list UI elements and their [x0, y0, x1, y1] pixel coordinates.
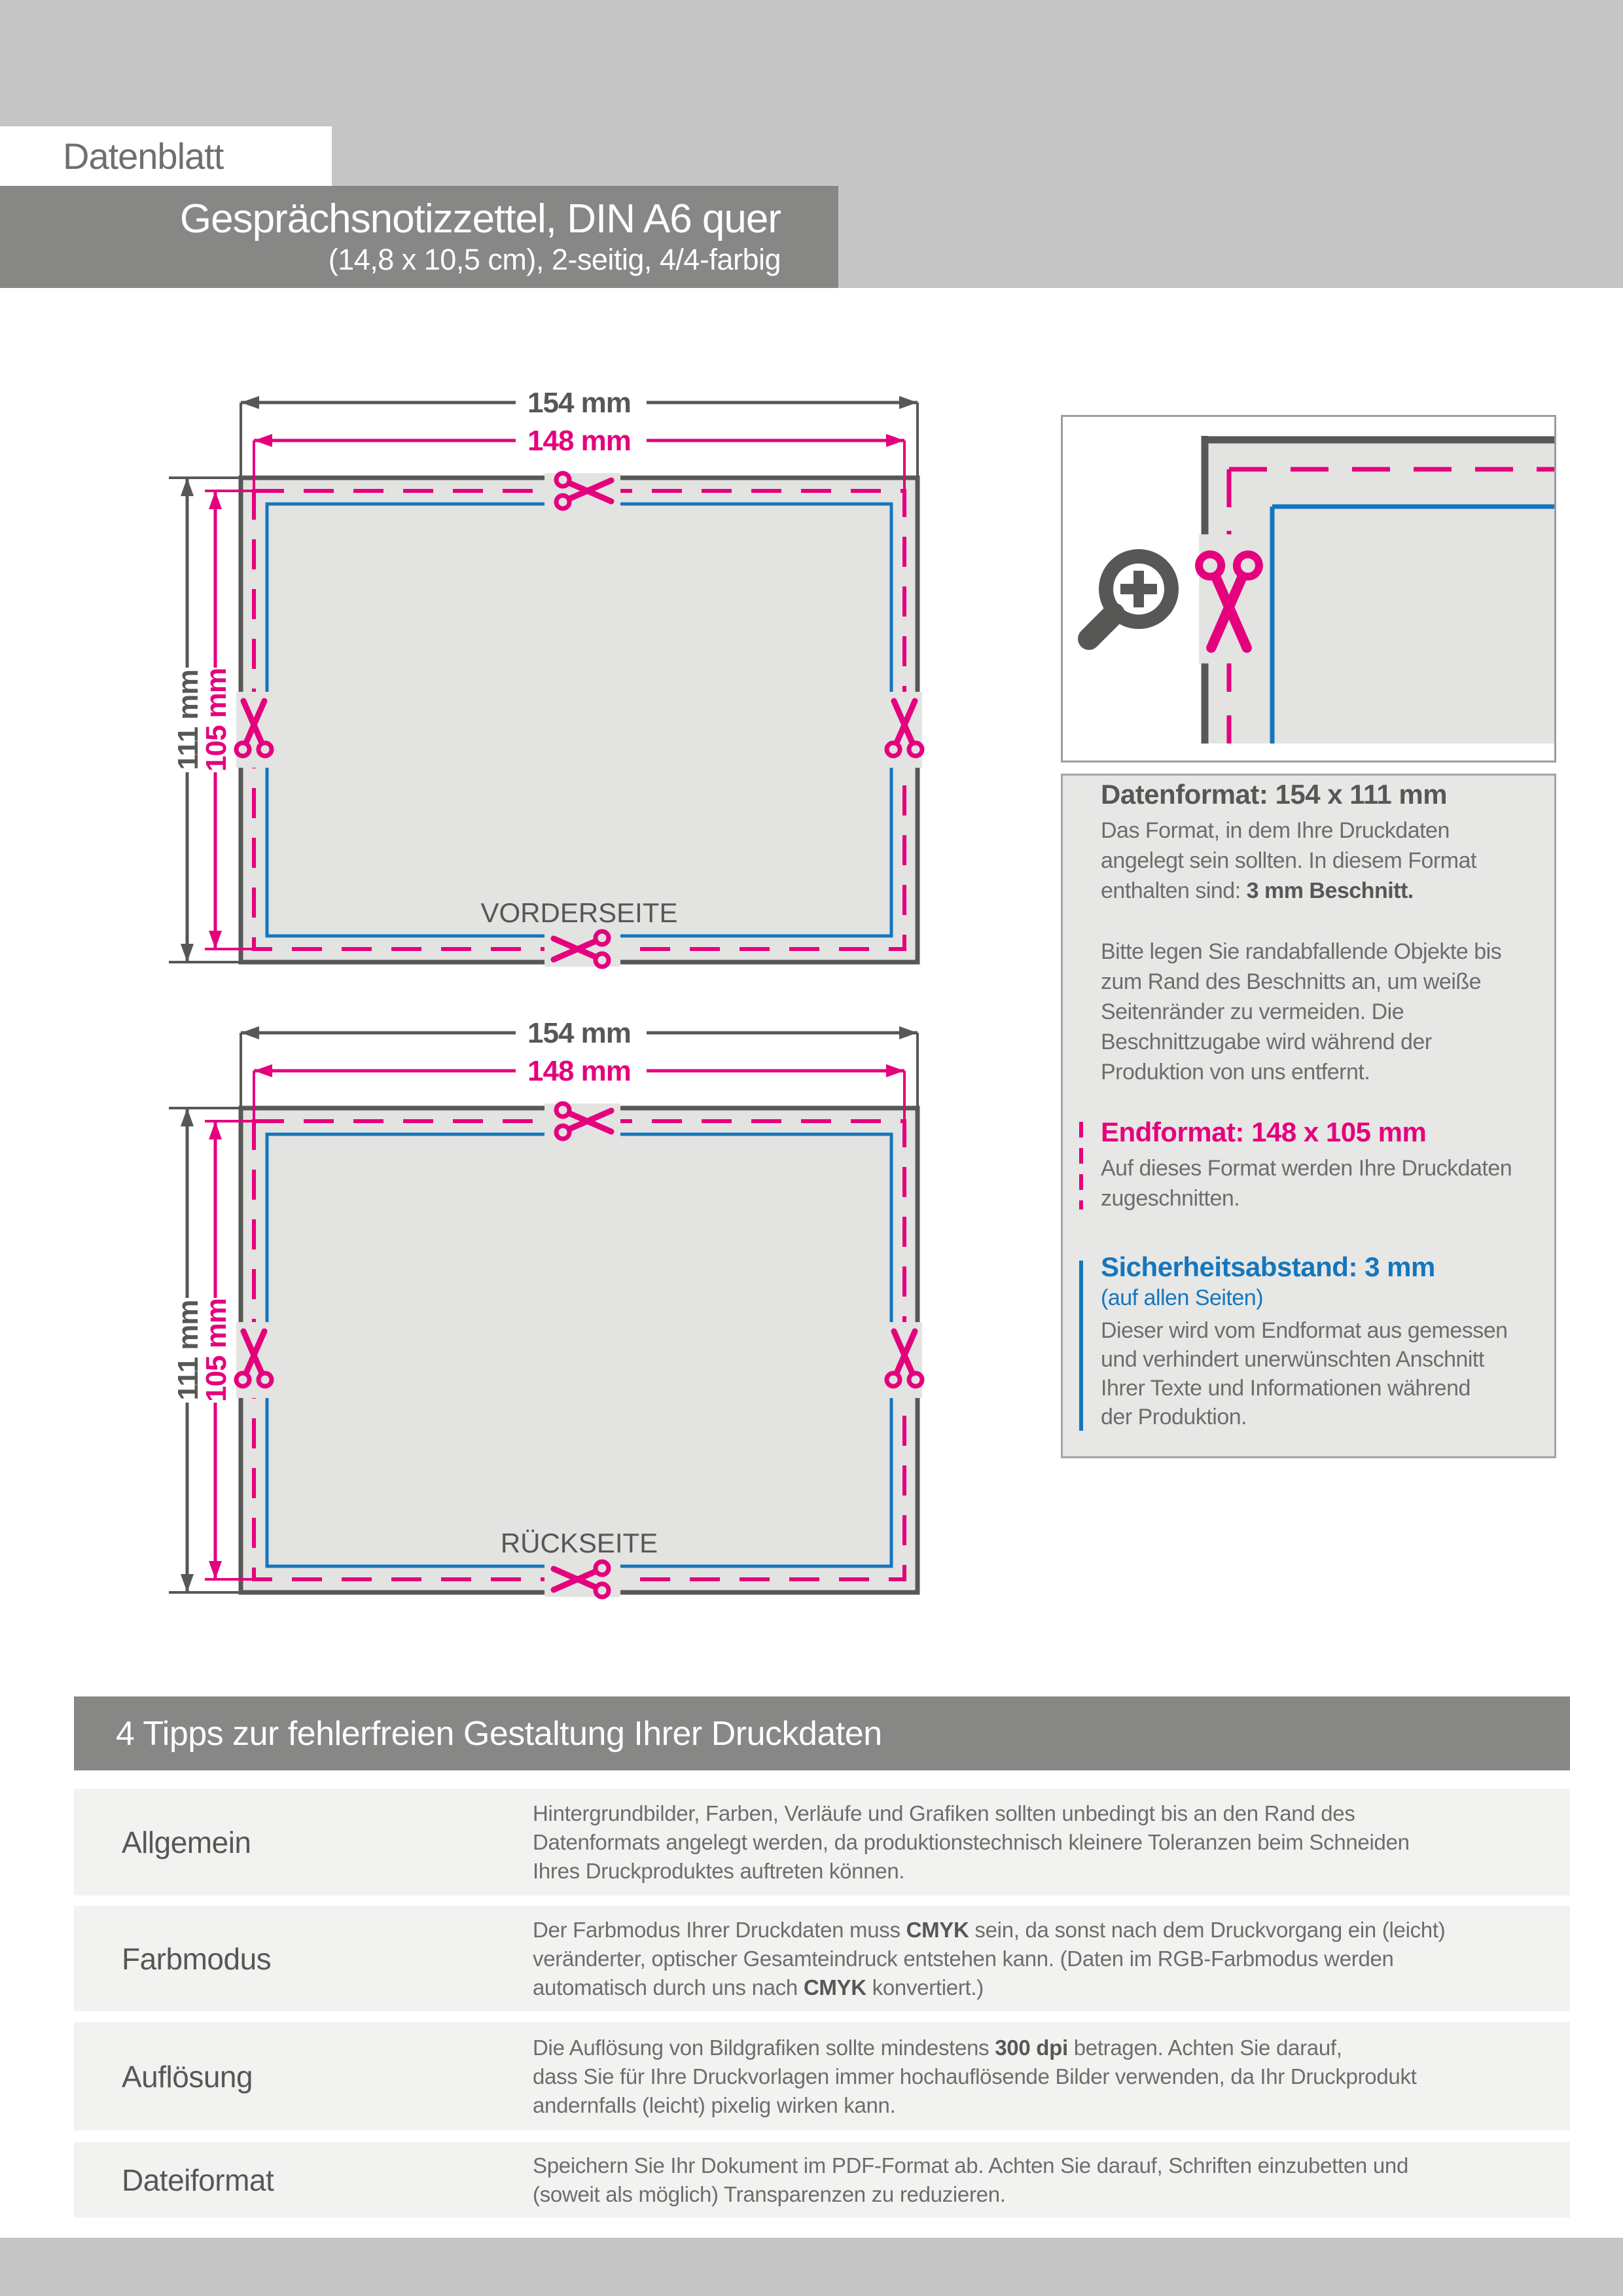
- dim-height-outer-label: 111 mm: [172, 1300, 204, 1400]
- text-line: Ihres Druckproduktes auftreten können.: [533, 1857, 1410, 1886]
- datenblatt-badge-label: Datenblatt: [63, 135, 223, 177]
- text-line: Datenformats angelegt werden, da produkt…: [533, 1828, 1410, 1857]
- text-line: und verhindert unerwünschten Anschnitt: [1101, 1345, 1533, 1374]
- text-line: Der Farbmodus Ihrer Druckdaten muss CMYK…: [533, 1916, 1445, 1945]
- scissors-icon: [544, 473, 620, 509]
- tip-text: Speichern Sie Ihr Dokument im PDF-Format…: [533, 2142, 1408, 2217]
- dataformat-heading: Datenformat: 154 x 111 mm: [1101, 779, 1533, 810]
- dataformat-paragraph: Das Format, in dem Ihre Druckdatenangele…: [1101, 816, 1533, 906]
- dim-width-outer-label: 154 mm: [527, 387, 631, 419]
- tip-text: Der Farbmodus Ihrer Druckdaten muss CMYK…: [533, 1906, 1445, 2011]
- safety-margin-paragraph: Dieser wird vom Endformat aus gemessenun…: [1101, 1316, 1533, 1431]
- tip-label: Farbmodus: [122, 1906, 271, 2011]
- scissors-icon: [887, 1322, 922, 1398]
- safety-margin-line: [267, 1134, 891, 1566]
- dimension-arrowhead: [254, 1064, 272, 1077]
- dimension-arrowhead: [181, 1108, 194, 1126]
- text-line: Bitte legen Sie randabfallende Objekte b…: [1101, 937, 1533, 967]
- safety-margin-heading: Sicherheitsabstand: 3 mm: [1101, 1251, 1533, 1283]
- text-line: Auf dieses Format werden Ihre Druckdaten: [1101, 1153, 1533, 1183]
- tip-label: Allgemein: [122, 1789, 251, 1895]
- text-line: der Produktion.: [1101, 1403, 1533, 1431]
- text-line: andernfalls (leicht) pixelig wirken kann…: [533, 2091, 1417, 2120]
- dim-width-trim-label: 148 mm: [527, 1055, 631, 1087]
- tip-label: Dateiformat: [122, 2142, 274, 2217]
- product-subtitle: (14,8 x 10,5 cm), 2-seitig, 4/4-farbig: [329, 242, 781, 278]
- dimension-arrowhead: [886, 1064, 904, 1077]
- text-line: zum Rand des Beschnitts an, um weiße: [1101, 967, 1533, 997]
- dim-width-outer-label: 154 mm: [527, 1017, 631, 1049]
- text-line: Hintergrundbilder, Farben, Verläufe und …: [533, 1799, 1410, 1828]
- text-line: automatisch durch uns nach CMYK konverti…: [533, 1973, 1445, 2002]
- tip-row-dateiformat: Dateiformat Speichern Sie Ihr Dokument i…: [74, 2142, 1570, 2217]
- dimension-arrowhead: [241, 1026, 259, 1039]
- text-line: Speichern Sie Ihr Dokument im PDF-Format…: [533, 2151, 1408, 2180]
- datenblatt-badge: Datenblatt: [0, 126, 332, 186]
- dimension-arrowhead: [254, 434, 272, 447]
- datasheet-page: Datenblatt Gesprächsnotizzettel, DIN A6 …: [0, 0, 1623, 2296]
- text-line: veränderter, optischer Gesamteindruck en…: [533, 1945, 1445, 1973]
- tip-text: Die Auflösung von Bildgrafiken sollte mi…: [533, 2022, 1417, 2130]
- text-line: Beschnittzugabe wird während der: [1101, 1027, 1533, 1057]
- tip-row-allgemein: Allgemein Hintergrundbilder, Farben, Ver…: [74, 1789, 1570, 1895]
- dim-height-outer-label: 111 mm: [172, 670, 204, 770]
- dimension-arrowhead: [886, 434, 904, 447]
- tip-row-aufloesung: Auflösung Die Auflösung von Bildgrafiken…: [74, 2022, 1570, 2130]
- scissors-icon: [544, 1562, 620, 1597]
- text-line: enthalten sind: 3 mm Beschnitt.: [1101, 876, 1533, 906]
- text-line: Produktion von uns entfernt.: [1101, 1057, 1533, 1087]
- text-line: dass Sie für Ihre Druckvorlagen immer ho…: [533, 2062, 1417, 2091]
- safety-margin-section: Sicherheitsabstand: 3 mm (auf allen Seit…: [1101, 1251, 1533, 1431]
- endformat-heading: Endformat: 148 x 105 mm: [1101, 1117, 1533, 1148]
- scissors-icon: [236, 692, 272, 768]
- card-data-format: [241, 478, 918, 962]
- bottom-background-band: [0, 2238, 1623, 2296]
- dim-height-trim-label: 105 mm: [200, 1299, 232, 1402]
- card-side-label: RÜCKSEITE: [501, 1528, 658, 1558]
- dimension-arrowhead: [209, 1561, 222, 1579]
- dimension-arrowhead: [241, 396, 259, 409]
- tips-header-bar: 4 Tipps zur fehlerfreien Gestaltung Ihre…: [74, 1696, 1570, 1770]
- dataformat-section: Datenformat: 154 x 111 mm Das Format, in…: [1101, 779, 1533, 906]
- zoom-detail-box: [1061, 415, 1556, 762]
- card-data-format: [241, 1108, 918, 1592]
- text-line: Das Format, in dem Ihre Druckdaten: [1101, 816, 1533, 846]
- text-line: (soweit als möglich) Transparenzen zu re…: [533, 2180, 1408, 2209]
- diagram-front: VORDERSEITE154 mm148 mm111 mm105 mm: [169, 387, 922, 967]
- text-line: Seitenränder zu vermeiden. Die: [1101, 997, 1533, 1027]
- diagram-back: RÜCKSEITE154 mm148 mm111 mm105 mm: [169, 1017, 922, 1597]
- scissors-icon: [544, 1103, 620, 1139]
- tip-text: Hintergrundbilder, Farben, Verläufe und …: [533, 1789, 1410, 1895]
- dimension-arrowhead: [899, 1026, 918, 1039]
- endformat-section: Endformat: 148 x 105 mm Auf dieses Forma…: [1101, 1117, 1533, 1213]
- dimension-arrowhead: [181, 1574, 194, 1592]
- safety-margin-line: [267, 504, 891, 936]
- dimension-arrowhead: [209, 491, 222, 509]
- dim-height-trim-label: 105 mm: [200, 668, 232, 772]
- scissors-icon: [236, 1322, 272, 1398]
- dimension-arrowhead: [181, 478, 194, 496]
- trim-line: [254, 1121, 904, 1579]
- product-title-bar: Gesprächsnotizzettel, DIN A6 quer (14,8 …: [0, 186, 838, 288]
- card-side-label: VORDERSEITE: [480, 897, 677, 928]
- endformat-paragraph: Auf dieses Format werden Ihre Druckdaten…: [1101, 1153, 1533, 1213]
- tip-row-farbmodus: Farbmodus Der Farbmodus Ihrer Druckdaten…: [74, 1906, 1570, 2011]
- text-line: angelegt sein sollten. In diesem Format: [1101, 846, 1533, 876]
- safety-margin-subheading: (auf allen Seiten): [1101, 1285, 1533, 1311]
- bleed-note-section: Bitte legen Sie randabfallende Objekte b…: [1101, 937, 1533, 1087]
- tip-label: Auflösung: [122, 2022, 253, 2130]
- text-line: Ihrer Texte und Informationen während: [1101, 1374, 1533, 1403]
- trim-line: [254, 491, 904, 949]
- dimension-arrowhead: [209, 1121, 222, 1139]
- scissors-icon: [544, 931, 620, 967]
- dimension-arrowhead: [209, 931, 222, 949]
- tips-heading: 4 Tipps zur fehlerfreien Gestaltung Ihre…: [116, 1714, 882, 1753]
- dimension-arrowhead: [899, 396, 918, 409]
- dim-width-trim-label: 148 mm: [527, 425, 631, 457]
- scissors-icon: [887, 692, 922, 768]
- text-line: Dieser wird vom Endformat aus gemessen: [1101, 1316, 1533, 1345]
- text-line: Die Auflösung von Bildgrafiken sollte mi…: [533, 2034, 1417, 2062]
- product-title: Gesprächsnotizzettel, DIN A6 quer: [180, 196, 781, 242]
- bleed-note-paragraph: Bitte legen Sie randabfallende Objekte b…: [1101, 937, 1533, 1087]
- dimension-arrowhead: [181, 944, 194, 962]
- text-line: zugeschnitten.: [1101, 1183, 1533, 1213]
